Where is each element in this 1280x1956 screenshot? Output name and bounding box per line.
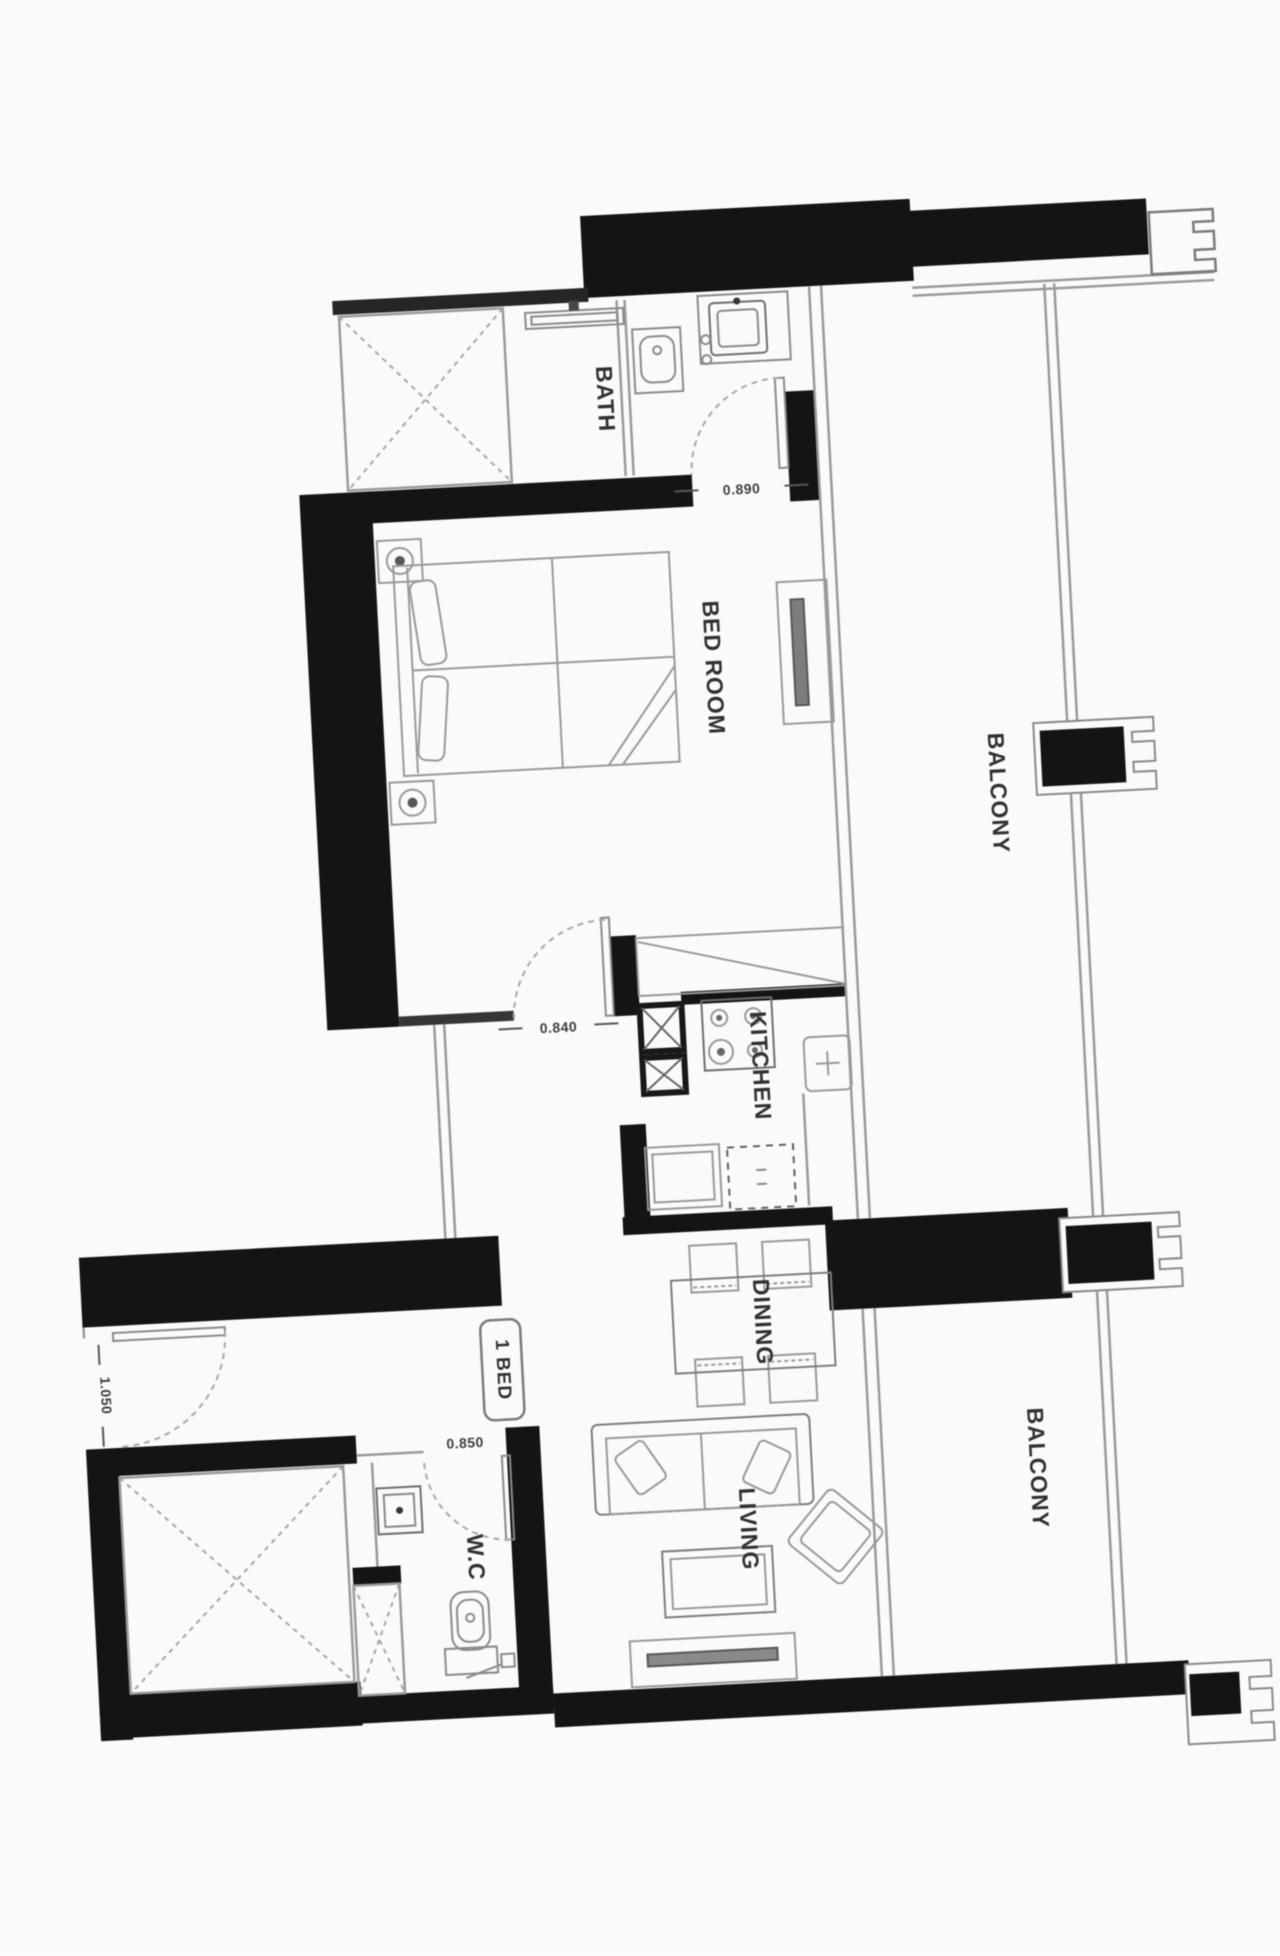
dim-tick	[784, 485, 808, 486]
dim-tick	[594, 1023, 618, 1024]
room-label-wc: W.C	[462, 1533, 490, 1581]
dimension-bath-door: 0.890	[722, 480, 760, 498]
entrance-jamb	[84, 1328, 85, 1339]
bracket-top-right	[1149, 209, 1216, 274]
room-label-bath: BATH	[591, 365, 620, 432]
floor-plan-svg: BATH BED ROOM KITCHEN DINING LIVING W.C …	[0, 0, 1280, 1956]
wall-segment	[580, 199, 914, 298]
dimension-wc-door: 0.850	[446, 1434, 484, 1452]
balcony-column	[1189, 1672, 1241, 1717]
unit-type-badge: 1 BED	[480, 1319, 525, 1421]
dim-tick	[103, 1427, 104, 1447]
room-label-dining: DINING	[748, 1278, 778, 1366]
kitchen-sink-cross	[827, 1051, 828, 1075]
dim-tick	[499, 1028, 523, 1029]
balcony-column	[1040, 726, 1127, 786]
shower-clamp	[568, 300, 579, 311]
dim-tick	[98, 1345, 99, 1365]
dimension-entrance-door: 1.050	[97, 1376, 115, 1414]
room-label-living: LIVING	[734, 1487, 764, 1571]
dim-tick	[675, 490, 699, 491]
appliance-mark	[756, 1170, 766, 1171]
wall-segment	[825, 1208, 1072, 1311]
unit-type-badge-label: 1 BED	[491, 1339, 515, 1401]
balcony-column	[1066, 1222, 1155, 1284]
kitchen-ducts	[639, 1004, 686, 1094]
appliance-mark	[757, 1184, 767, 1185]
dimension-bedroom-door: 0.840	[539, 1018, 577, 1036]
